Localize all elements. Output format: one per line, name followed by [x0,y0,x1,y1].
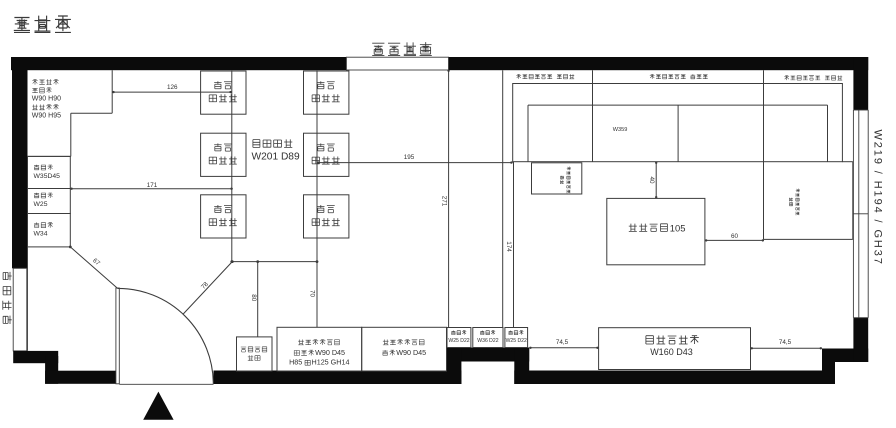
svg-text:W90 H95: W90 H95 [32,113,61,120]
svg-text:105: 105 [670,223,686,234]
svg-text:W35D45: W35D45 [34,173,61,180]
svg-text:W90 D45: W90 D45 [396,348,426,357]
svg-text:W36 D22: W36 D22 [477,338,498,344]
svg-text:W90 H90: W90 H90 [32,96,61,103]
svg-text:W25: W25 [34,201,48,208]
svg-text:70: 70 [309,290,316,298]
svg-text:W25 D22: W25 D22 [448,338,469,344]
svg-text:W359: W359 [613,127,628,133]
svg-text:271: 271 [441,196,448,207]
svg-text:195: 195 [404,154,415,161]
svg-text:H125 GH14: H125 GH14 [312,358,350,367]
svg-text:74,5: 74,5 [556,339,569,346]
svg-text:126: 126 [167,84,178,91]
svg-text:W34: W34 [34,231,48,238]
svg-text:60: 60 [731,233,739,240]
svg-text:40: 40 [648,176,655,184]
svg-text:171: 171 [147,182,158,189]
svg-text:W90 D45: W90 D45 [315,348,345,357]
svg-text:W25 D22: W25 D22 [506,338,527,344]
svg-text:W160 D43: W160 D43 [650,347,693,357]
svg-text:W219 / H194 / GH37: W219 / H194 / GH37 [872,130,884,266]
svg-text:80: 80 [250,294,257,302]
svg-text:174: 174 [505,241,512,252]
svg-text:W201 D89: W201 D89 [252,152,300,163]
svg-text:H85: H85 [289,358,302,367]
svg-text:74,5: 74,5 [779,339,792,346]
